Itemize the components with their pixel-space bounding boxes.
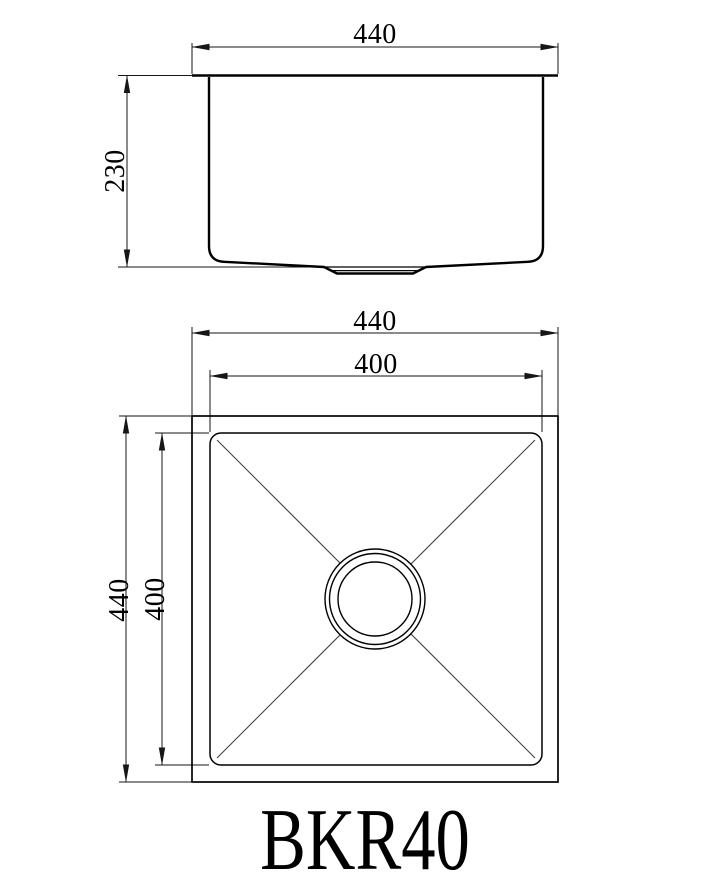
plan-outer-depth-dim-label: 440 [104,578,135,622]
page-background [0,0,710,882]
plan-outer-width-dim-label: 440 [353,306,397,337]
front-depth-dim-label: 230 [100,149,131,193]
model-label: BKR40 [260,792,470,882]
plan-inner-depth-dim-label: 400 [140,577,171,621]
technical-drawing-page: 440 230 440 400 [0,0,710,882]
sink-drawing-canvas: 440 230 440 400 [0,0,710,882]
front-width-dim-label: 440 [353,19,397,50]
plan-inner-width-dim-label: 400 [354,349,398,380]
